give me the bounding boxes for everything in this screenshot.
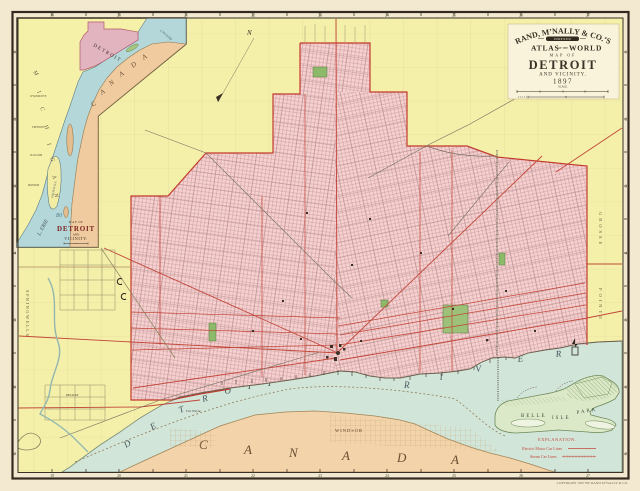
svg-text:25: 25 xyxy=(452,14,456,18)
svg-text:80: 80 xyxy=(56,213,62,219)
svg-text:SCALE.: SCALE. xyxy=(558,86,568,89)
svg-text:3: 3 xyxy=(14,185,16,189)
svg-text:MAP OF: MAP OF xyxy=(550,53,577,58)
svg-text:2: 2 xyxy=(625,118,627,122)
svg-text:27: 27 xyxy=(586,14,590,18)
svg-text:6: 6 xyxy=(14,386,16,390)
svg-text:N: N xyxy=(246,29,252,37)
svg-text:5: 5 xyxy=(625,319,627,323)
svg-text:VICINITY.: VICINITY. xyxy=(64,236,88,241)
svg-text:INDEXED: INDEXED xyxy=(554,37,572,41)
svg-text:ISLE: ISLE xyxy=(552,416,571,421)
svg-text:3: 3 xyxy=(625,185,627,189)
svg-text:6: 6 xyxy=(625,386,627,390)
svg-text:21: 21 xyxy=(184,14,188,18)
svg-text:26: 26 xyxy=(519,474,523,478)
svg-text:SPRINGWELLS: SPRINGWELLS xyxy=(25,290,30,338)
svg-text:23: 23 xyxy=(318,14,322,18)
svg-text:7: 7 xyxy=(14,453,16,457)
svg-text:D: D xyxy=(396,450,407,465)
svg-text:COPYRIGHT 1897 BY RAND M“NALLY: COPYRIGHT 1897 BY RAND M“NALLY & CO. xyxy=(557,480,628,485)
svg-text:WYANDOTTE: WYANDOTTE xyxy=(30,95,47,98)
svg-text:POINTE: POINTE xyxy=(598,288,603,322)
svg-text:7: 7 xyxy=(625,453,627,457)
svg-text:DELRAY: DELRAY xyxy=(66,393,79,397)
svg-text:A: A xyxy=(341,448,350,463)
svg-text:ATLAS: ATLAS xyxy=(531,44,559,53)
svg-text:24: 24 xyxy=(385,474,389,478)
svg-text:20: 20 xyxy=(117,14,121,18)
svg-text:25: 25 xyxy=(452,474,456,478)
svg-text:20: 20 xyxy=(117,474,121,478)
svg-text:A: A xyxy=(243,442,252,457)
svg-text:2: 2 xyxy=(14,118,16,122)
svg-text:R: R xyxy=(403,380,410,390)
svg-text:24: 24 xyxy=(385,14,389,18)
svg-text:21: 21 xyxy=(184,474,188,478)
svg-text:MAP OF: MAP OF xyxy=(69,220,84,224)
svg-text:MONROE: MONROE xyxy=(28,184,40,187)
svg-text:Fort Wayne: Fort Wayne xyxy=(186,409,201,413)
svg-text:N: N xyxy=(288,445,299,460)
svg-text:22: 22 xyxy=(251,474,255,478)
svg-text:1: 1 xyxy=(625,51,627,55)
svg-text:Steam Car Lines: Steam Car Lines xyxy=(530,454,557,459)
svg-text:BELLE: BELLE xyxy=(521,414,547,419)
svg-text:4: 4 xyxy=(625,252,627,256)
svg-text:4: 4 xyxy=(14,252,16,256)
svg-text:GROSSE: GROSSE xyxy=(598,212,603,247)
svg-text:19: 19 xyxy=(50,14,54,18)
svg-text:A: A xyxy=(450,452,459,467)
svg-text:5: 5 xyxy=(14,319,16,323)
svg-text:WORLD: WORLD xyxy=(569,44,602,53)
svg-text:EXPLANATION.: EXPLANATION. xyxy=(538,437,576,442)
svg-text:1897: 1897 xyxy=(553,78,573,86)
svg-text:22: 22 xyxy=(251,14,255,18)
svg-text:26: 26 xyxy=(519,14,523,18)
svg-text:Electric Motor Car Lines: Electric Motor Car Lines xyxy=(522,446,563,451)
svg-text:WINDSOR: WINDSOR xyxy=(335,428,363,433)
svg-text:SLOCUMS: SLOCUMS xyxy=(30,154,43,157)
svg-text:19: 19 xyxy=(50,474,54,478)
svg-text:TRENTON: TRENTON xyxy=(32,126,44,129)
svg-text:23: 23 xyxy=(318,474,322,478)
svg-text:DETROIT: DETROIT xyxy=(529,58,598,72)
svg-text:27: 27 xyxy=(586,474,590,478)
svg-text:1: 1 xyxy=(14,51,16,55)
svg-text:OF THE: OF THE xyxy=(558,46,569,50)
